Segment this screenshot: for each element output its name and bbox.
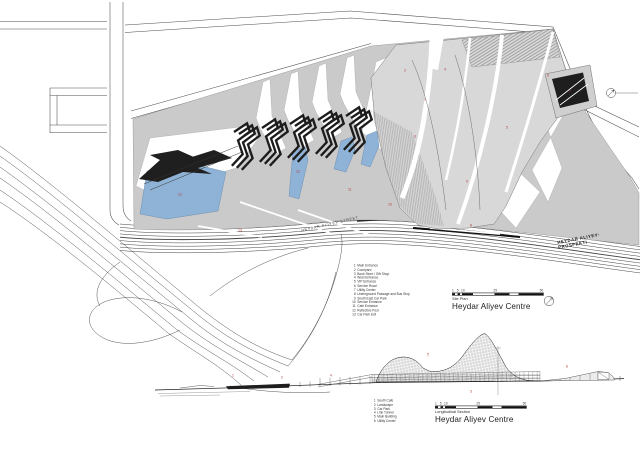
scale-tick: 1 [452,289,454,293]
site-plan-label: Site Plan [452,297,544,301]
north-arrow [544,296,554,306]
section-titleblock: 15102550 Longitudinal Section Heydar Ali… [435,402,527,424]
legend-item-label: Utility Center [377,419,395,423]
site-scale-ticks: 15102550 [452,289,544,293]
scale-tick: 1 [435,402,437,406]
section-drawing [155,334,624,397]
scale-tick: 5 [440,402,442,406]
site-plan-legend: 1 Main Entrance 2 Courtyard 3 Book Store… [351,264,465,317]
scale-tick: 25 [493,289,497,293]
legend-item-label: Car Park Exit [357,313,376,317]
section-label: Longitudinal Section [435,410,527,414]
legend-item-number: 13 [351,313,356,317]
section-scale-bar [435,406,527,409]
scale-tick: 25 [476,402,480,406]
scale-tick: 5 [457,289,459,293]
site-scale-bar [452,293,544,296]
scale-tick: 10 [461,289,465,293]
section-scale-ticks: 15102550 [435,402,527,406]
site-plan-title: Heydar Aliyev Centre [452,302,544,311]
section-title: Heydar Aliyev Centre [435,415,527,424]
scale-tick: 10 [444,402,448,406]
legend-item: 13 Car Park Exit [351,313,465,317]
legend-item-number: 6 [371,419,376,423]
survey-marker [606,88,638,97]
scale-tick: 50 [523,402,527,406]
scale-tick: 50 [540,289,544,293]
architectural-drawing-sheet: HEYDAR ALIYEV STREET HEYDAR ALIYEV- PROS… [0,0,640,452]
site-plan-titleblock: 15102550 Site Plan Heydar Aliyev Centre [452,289,544,311]
